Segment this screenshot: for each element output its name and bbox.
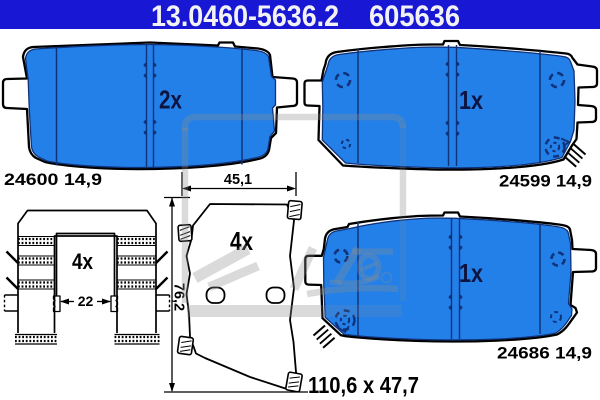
svg-text:24599 14,9: 24599 14,9 <box>499 172 592 191</box>
svg-text:13.0460-5636.2: 13.0460-5636.2 <box>151 0 339 33</box>
svg-text:24600 14,9: 24600 14,9 <box>4 170 102 189</box>
svg-text:605636: 605636 <box>369 0 460 33</box>
svg-text:24686 14,9: 24686 14,9 <box>497 344 592 363</box>
svg-text:110,6 x 47,7: 110,6 x 47,7 <box>308 372 419 398</box>
svg-text:4x: 4x <box>72 249 94 274</box>
svg-text:45,1: 45,1 <box>224 172 252 188</box>
svg-text:22: 22 <box>78 293 94 309</box>
svg-text:1x: 1x <box>459 85 483 115</box>
svg-text:1x: 1x <box>459 258 483 288</box>
svg-text:2x: 2x <box>159 85 182 115</box>
